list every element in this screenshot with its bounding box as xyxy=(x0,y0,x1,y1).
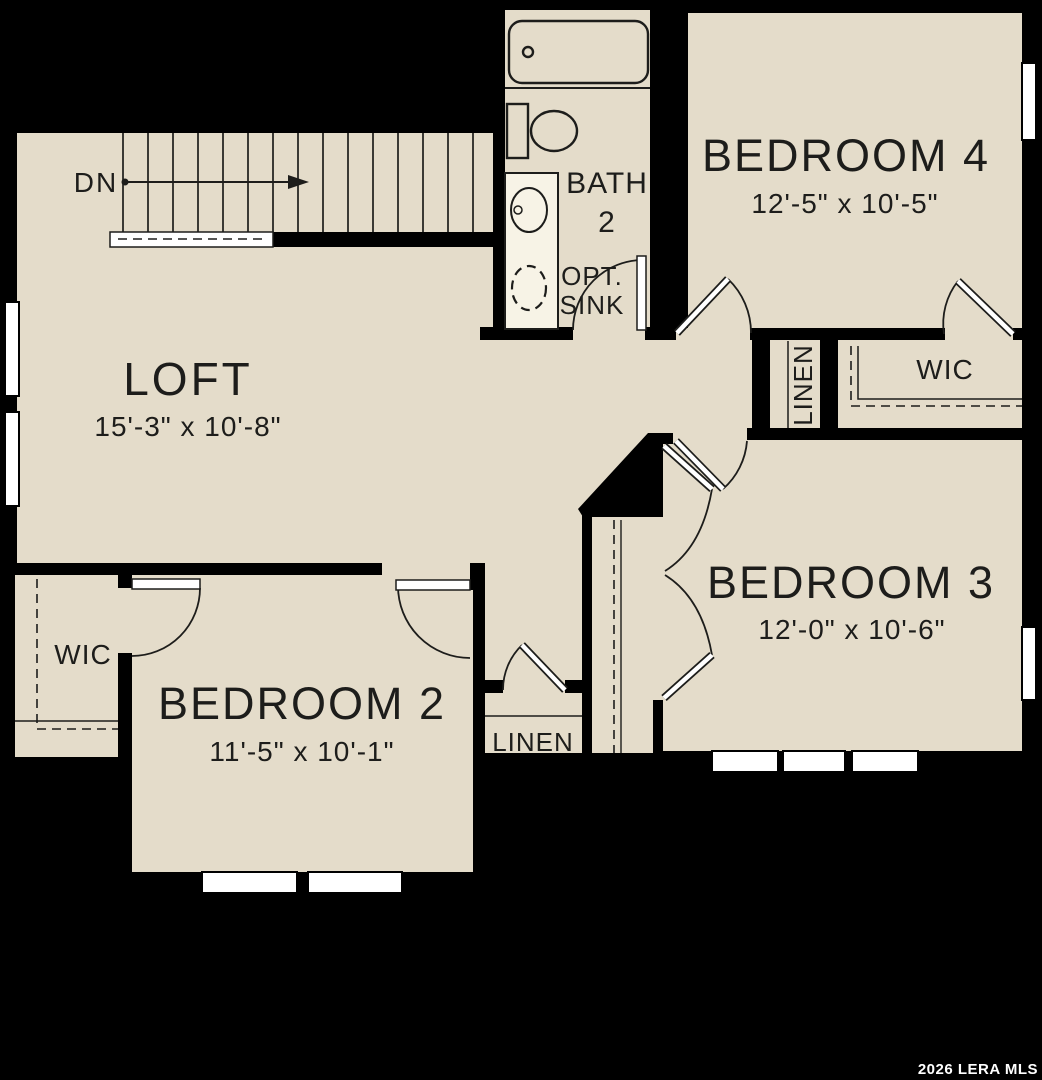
stairs-down-label: DN xyxy=(74,167,118,198)
wall-segment xyxy=(8,563,382,575)
bedroom2-dimensions: 11'-5" x 10'-1" xyxy=(209,736,394,767)
linen2-label: LINEN xyxy=(492,727,574,757)
wic4-doorway-gap xyxy=(945,328,1013,340)
toilet-tank xyxy=(507,104,528,158)
loft-title: LOFT xyxy=(123,353,253,405)
bedroom4-doorway-gap xyxy=(676,328,750,340)
optional-sink-label-line1: OPT. xyxy=(561,261,623,291)
bedroom3-dimensions: 12'-0" x 10'-6" xyxy=(758,614,945,645)
wall-segment xyxy=(125,872,485,890)
bedroom3-window xyxy=(712,751,778,772)
sink-basin xyxy=(511,188,547,232)
bath2-number: 2 xyxy=(598,206,616,239)
wall-segment xyxy=(485,680,503,693)
optional-sink-label-line2: SINK xyxy=(560,290,625,320)
bedroom2-window xyxy=(308,872,402,893)
bedroom4-title: BEDROOM 4 xyxy=(702,130,990,181)
closet-header-line xyxy=(583,513,655,517)
wall-segment xyxy=(645,327,676,340)
wall-segment xyxy=(118,575,132,588)
bedroom3-window xyxy=(1022,627,1036,700)
floor-plan-drawing: LOFT 15'-3" x 10'-8" DN BATH 2 OPT. SINK… xyxy=(0,0,1042,1080)
bathtub-drain xyxy=(523,47,533,57)
bedroom3-closet-floor xyxy=(592,517,655,757)
bedroom2-doorway-gap xyxy=(382,563,470,575)
wall-segment xyxy=(473,575,485,875)
mls-watermark: 2026 LERA MLS xyxy=(918,1061,1038,1078)
hall-right-floor xyxy=(663,340,752,428)
wic2-doorway-gap xyxy=(118,588,132,653)
bedroom3-doorway-gap xyxy=(663,428,747,440)
bedroom2-title: BEDROOM 2 xyxy=(158,678,446,729)
bedroom3-window xyxy=(783,751,845,772)
bedroom2-window xyxy=(202,872,297,893)
wall-segment xyxy=(582,513,592,772)
wic4-label: WIC xyxy=(916,354,973,385)
wall-segment xyxy=(565,680,582,693)
loft-window xyxy=(5,412,19,506)
bath2-doorway-gap xyxy=(573,328,645,340)
bath2-title: BATH xyxy=(566,167,648,200)
bedroom3-title: BEDROOM 3 xyxy=(707,557,995,608)
toilet-bowl xyxy=(531,111,577,151)
wall-segment xyxy=(8,757,132,772)
bedroom3-window xyxy=(852,751,918,772)
floor-plan-page: LOFT 15'-3" x 10'-8" DN BATH 2 OPT. SINK… xyxy=(0,0,1042,1080)
wall-segment xyxy=(747,428,1022,440)
stair-side-wall xyxy=(273,232,493,247)
loft-dimensions: 15'-3" x 10'-8" xyxy=(94,411,281,442)
linen4-label: LINEN xyxy=(788,344,818,426)
bedroom4-window xyxy=(1022,63,1036,140)
bedroom4-dimensions: 12'-5" x 10'-5" xyxy=(751,188,938,219)
loft-window xyxy=(5,302,19,396)
wic2-label: WIC xyxy=(54,639,111,670)
